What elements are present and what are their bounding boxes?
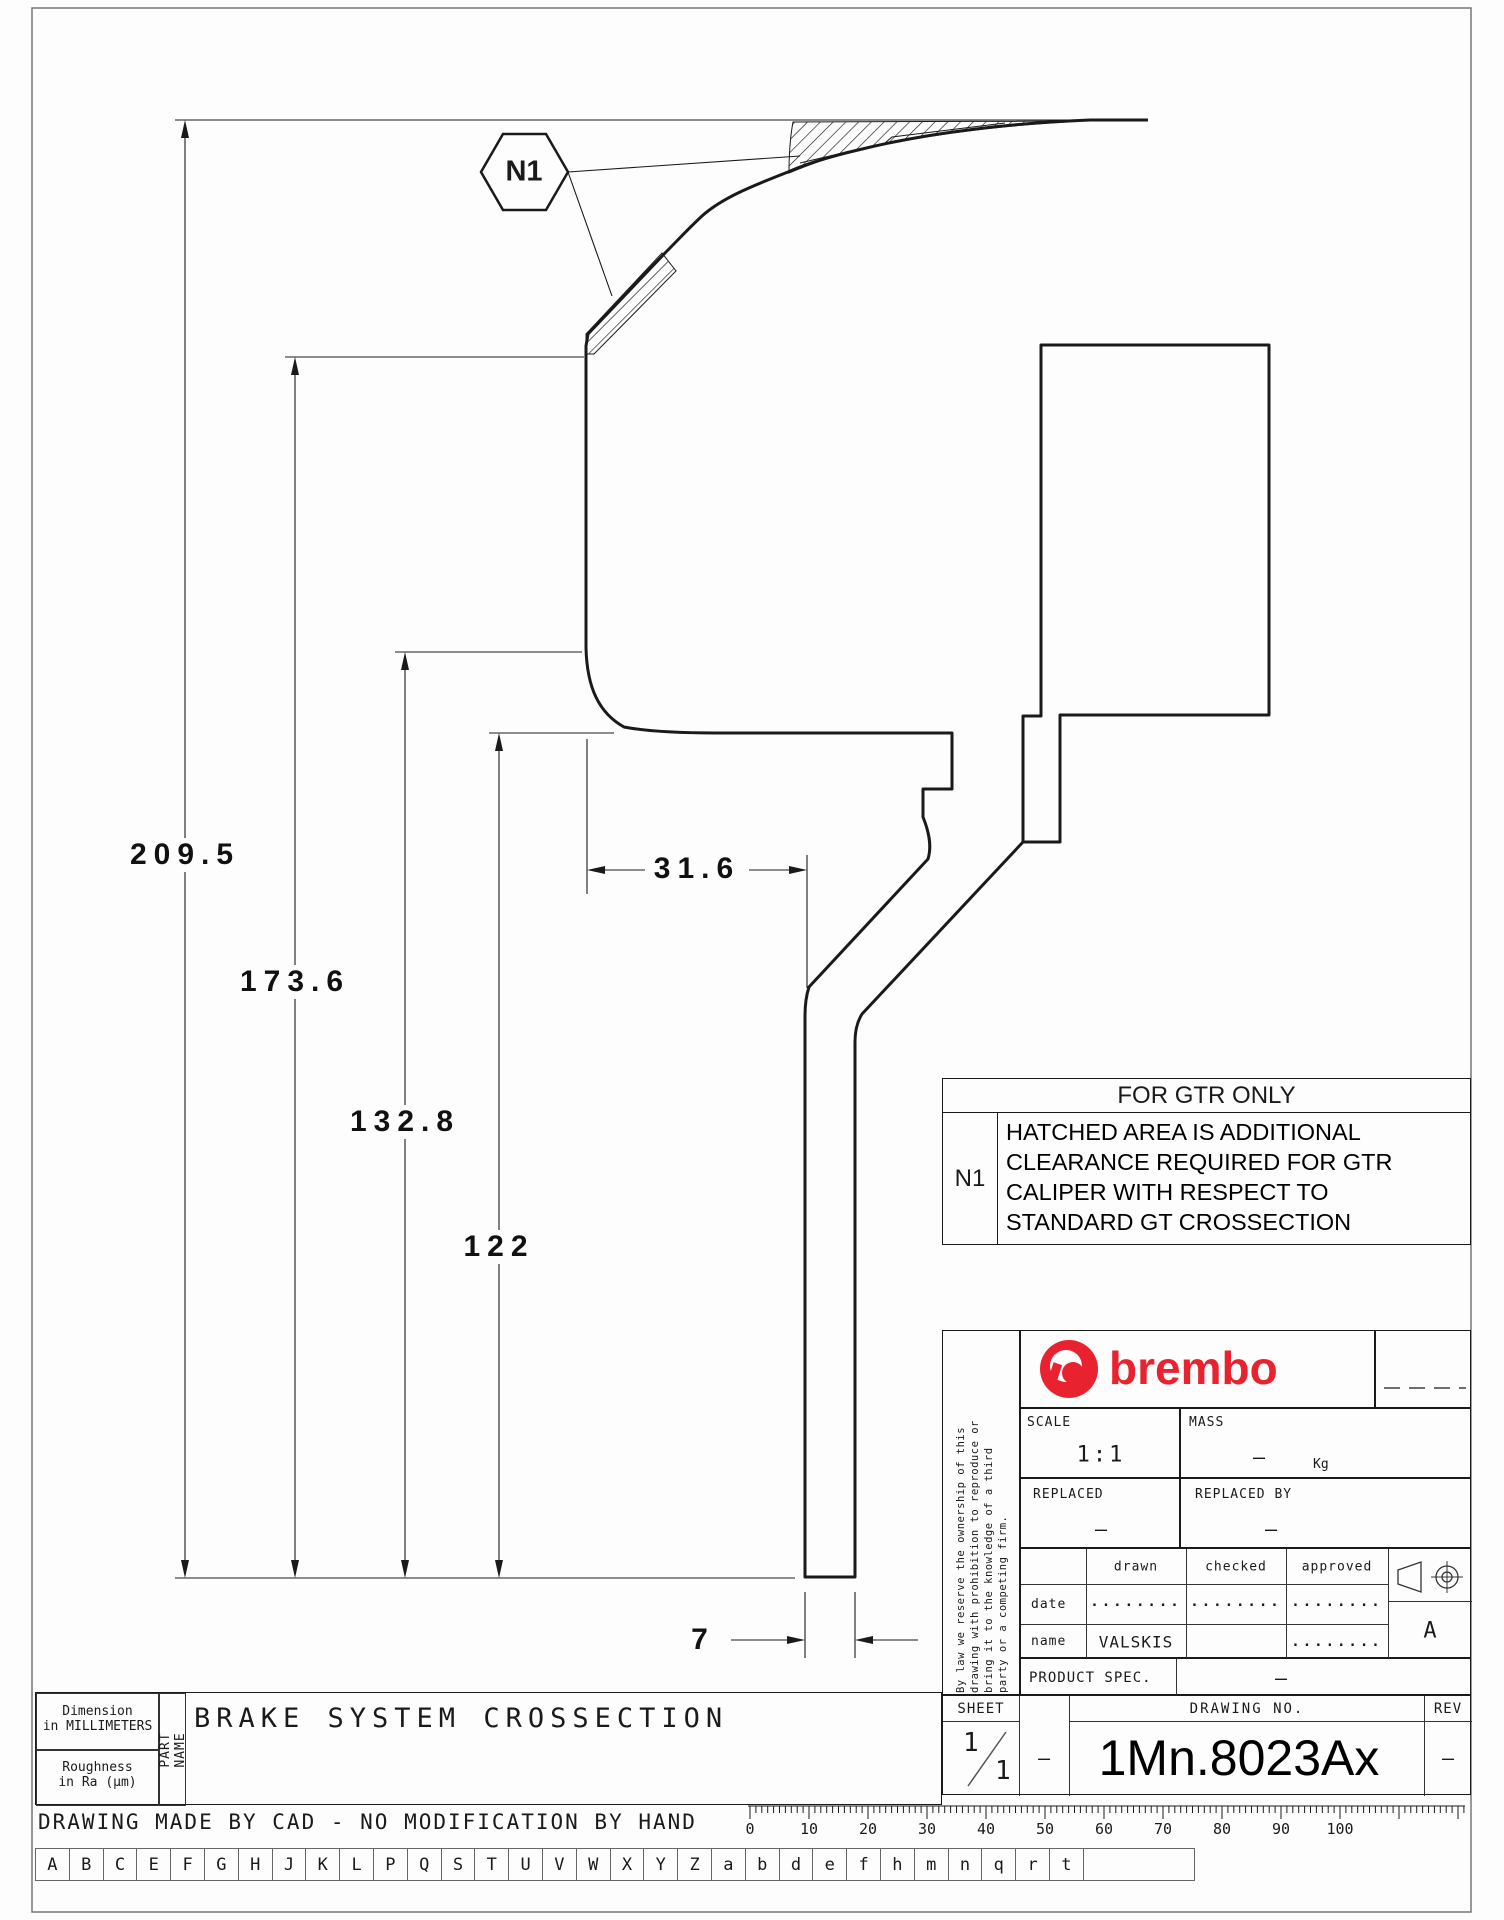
letter-cell-b: b bbox=[745, 1848, 780, 1881]
letter-cell-Z: Z bbox=[677, 1848, 712, 1881]
note-table: FOR GTR ONLY N1 HATCHED AREA IS ADDITION… bbox=[942, 1078, 1471, 1245]
signature-grid: drawn checked approved date ........ ...… bbox=[1020, 1548, 1471, 1658]
letter-cell-e: e bbox=[812, 1848, 847, 1881]
letter-cell-U: U bbox=[508, 1848, 543, 1881]
ruler-label-50: 50 bbox=[1036, 1820, 1054, 1838]
sheet-num: 1 bbox=[963, 1728, 979, 1758]
note-table-header: FOR GTR ONLY bbox=[943, 1079, 1470, 1113]
dim-value-132-8: 132.8 bbox=[344, 1105, 466, 1139]
replaced-by-label: REPLACED BY bbox=[1195, 1487, 1292, 1502]
replaced-value: – bbox=[1095, 1517, 1107, 1541]
brand-cell: brembo bbox=[1020, 1330, 1375, 1408]
ruler-label-100: 100 bbox=[1326, 1820, 1353, 1838]
sheet-label: SHEET bbox=[957, 1701, 1004, 1717]
ruler-labels: 0102030405060708090100 bbox=[0, 1820, 1504, 1840]
ruler-label-10: 10 bbox=[800, 1820, 818, 1838]
ruler-ticks bbox=[748, 1806, 1465, 1819]
product-spec-value: – bbox=[1275, 1666, 1287, 1690]
rev-value: – bbox=[1442, 1746, 1454, 1770]
disclaimer-line-3: party or a competing firm. bbox=[996, 1333, 1010, 1693]
ruler-label-80: 80 bbox=[1213, 1820, 1231, 1838]
roughness-note-line2: in Ra (µm) bbox=[37, 1775, 158, 1790]
ruler-label-0: 0 bbox=[745, 1820, 754, 1838]
hatched-area-top bbox=[789, 121, 1082, 173]
disclaimer-text: By law we reserve the ownership of thisd… bbox=[954, 1333, 1010, 1693]
letter-cell-d: d bbox=[779, 1848, 814, 1881]
letter-cell-h: h bbox=[880, 1848, 915, 1881]
mass-label: MASS bbox=[1189, 1415, 1224, 1430]
letter-cell-G: G bbox=[204, 1848, 239, 1881]
letter-cell-f: f bbox=[846, 1848, 881, 1881]
ruler-label-90: 90 bbox=[1272, 1820, 1290, 1838]
part-name-label: PART NAME bbox=[158, 1732, 188, 1767]
sheet-row: SHEET 1 1 – DRAWING NO. 1Mn.8023Ax REV – bbox=[942, 1695, 1471, 1795]
letter-cell-J: J bbox=[272, 1848, 307, 1881]
date-label: date bbox=[1031, 1597, 1066, 1612]
dim-value-173-6: 173.6 bbox=[234, 965, 356, 999]
letter-cell-m: m bbox=[914, 1848, 949, 1881]
date-approved-value: ........ bbox=[1291, 1594, 1382, 1610]
dimension-arrows bbox=[181, 120, 873, 1644]
brembo-logo-icon bbox=[1037, 1337, 1101, 1401]
letter-cell-F: F bbox=[170, 1848, 205, 1881]
note-line-2: CALIPER WITH RESPECT TO bbox=[1006, 1177, 1466, 1207]
letter-cell-H: H bbox=[238, 1848, 273, 1881]
name-approved-value: ........ bbox=[1291, 1634, 1382, 1650]
name-label: name bbox=[1031, 1634, 1066, 1649]
dimension-note-line1: Dimension bbox=[37, 1704, 158, 1719]
dim-value-31-6: 31.6 bbox=[648, 852, 746, 886]
note-line-0: HATCHED AREA IS ADDITIONAL bbox=[1006, 1117, 1466, 1147]
drawn-header: drawn bbox=[1114, 1560, 1158, 1575]
letter-cell-S: S bbox=[441, 1848, 476, 1881]
ruler-label-20: 20 bbox=[859, 1820, 877, 1838]
projection-symbol-icon bbox=[1393, 1557, 1469, 1597]
letter-cell-A: A bbox=[35, 1848, 70, 1881]
replaced-by-value: – bbox=[1265, 1517, 1277, 1541]
product-spec-label: PRODUCT SPEC. bbox=[1029, 1670, 1152, 1686]
callout-leader-lines bbox=[568, 156, 800, 296]
letters-row: ABCEFGHJKLPQSTUVWXYZabdefhmnqrt bbox=[35, 1848, 1335, 1881]
letter-cell-Y: Y bbox=[643, 1848, 678, 1881]
letter-cell-B: B bbox=[69, 1848, 104, 1881]
sheet-dash-value: – bbox=[1038, 1746, 1050, 1770]
letter-cell-empty bbox=[1083, 1848, 1195, 1881]
drawing-no-label: DRAWING NO. bbox=[1190, 1701, 1305, 1717]
roughness-note-box: Roughness in Ra (µm) bbox=[36, 1750, 159, 1806]
date-drawn-value: ........ bbox=[1090, 1594, 1181, 1610]
note-line-3: STANDARD GT CROSSECTION bbox=[1006, 1207, 1466, 1237]
mass-unit: Kg bbox=[1313, 1457, 1329, 1472]
letter-cell-r: r bbox=[1015, 1848, 1050, 1881]
dimension-note-box: Dimension in MILLIMETERS bbox=[36, 1693, 159, 1750]
letter-cell-Q: Q bbox=[407, 1848, 442, 1881]
titleblock-top-right-cell bbox=[1375, 1330, 1471, 1408]
roughness-note-line1: Roughness bbox=[37, 1760, 158, 1775]
letter-cell-a: a bbox=[711, 1848, 746, 1881]
dim-value-7: 7 bbox=[685, 1623, 721, 1657]
letter-cell-T: T bbox=[474, 1848, 509, 1881]
scale-label: SCALE bbox=[1027, 1415, 1071, 1430]
letter-cell-L: L bbox=[339, 1848, 374, 1881]
letter-cell-n: n bbox=[948, 1848, 983, 1881]
approved-header: approved bbox=[1302, 1560, 1373, 1575]
drawing-sheet: 209.5 173.6 132.8 122 31.6 7 N1 FOR GTR … bbox=[0, 0, 1504, 1920]
replaced-label: REPLACED bbox=[1033, 1487, 1104, 1502]
mass-cell: MASS – Kg bbox=[1180, 1408, 1471, 1478]
mass-value: – bbox=[1253, 1445, 1265, 1469]
callout-label: N1 bbox=[505, 156, 542, 189]
scale-cell: SCALE 1:1 bbox=[1020, 1408, 1180, 1478]
rev-label: REV bbox=[1434, 1701, 1462, 1717]
letter-cell-C: C bbox=[103, 1848, 138, 1881]
letter-cell-K: K bbox=[305, 1848, 340, 1881]
disclaimer-strip: By law we reserve the ownership of thisd… bbox=[942, 1330, 1020, 1695]
dim-value-122: 122 bbox=[457, 1230, 540, 1264]
scale-value: 1:1 bbox=[1077, 1443, 1126, 1468]
dimension-note-line2: in MILLIMETERS bbox=[37, 1719, 158, 1734]
replaced-by-cell: REPLACED BY – bbox=[1180, 1478, 1471, 1548]
note-line-1: CLEARANCE REQUIRED FOR GTR bbox=[1006, 1147, 1466, 1177]
letter-cell-t: t bbox=[1049, 1848, 1084, 1881]
ruler-label-60: 60 bbox=[1095, 1820, 1113, 1838]
ruler-label-30: 30 bbox=[918, 1820, 936, 1838]
note-table-text: HATCHED AREA IS ADDITIONALCLEARANCE REQU… bbox=[1006, 1117, 1466, 1237]
footer-strip: Dimension in MILLIMETERS Roughness in Ra… bbox=[35, 1692, 942, 1805]
name-drawn-value: VALSKIS bbox=[1099, 1633, 1173, 1652]
caliper-block-outline bbox=[1023, 345, 1269, 842]
hatched-area-band bbox=[586, 253, 676, 354]
letter-cell-q: q bbox=[981, 1848, 1016, 1881]
product-spec-cell: PRODUCT SPEC. – bbox=[1020, 1658, 1471, 1695]
format-letter: A bbox=[1423, 1619, 1436, 1644]
drawing-no-value: 1Mn.8023Ax bbox=[1099, 1729, 1380, 1787]
part-name-label-box: PART NAME bbox=[159, 1693, 186, 1806]
date-checked-value: ........ bbox=[1190, 1594, 1281, 1610]
disclaimer-line-2: bring it to the knowledge of a third bbox=[982, 1333, 996, 1693]
disclaimer-line-1: drawing with prohibition to reproduce or bbox=[968, 1333, 982, 1693]
letter-cell-X: X bbox=[610, 1848, 645, 1881]
part-name-value: BRAKE SYSTEM CROSSECTION bbox=[194, 1703, 728, 1734]
letter-cell-V: V bbox=[542, 1848, 577, 1881]
letter-cell-E: E bbox=[136, 1848, 171, 1881]
letter-cell-P: P bbox=[373, 1848, 408, 1881]
ruler-label-40: 40 bbox=[977, 1820, 995, 1838]
brand-wordmark: brembo bbox=[1109, 1341, 1278, 1395]
letter-cell-W: W bbox=[576, 1848, 611, 1881]
note-table-ref: N1 bbox=[943, 1113, 998, 1244]
replaced-cell: REPLACED – bbox=[1020, 1478, 1180, 1548]
ruler-label-70: 70 bbox=[1154, 1820, 1172, 1838]
disclaimer-line-0: By law we reserve the ownership of this bbox=[954, 1333, 968, 1693]
dim-value-209-5: 209.5 bbox=[124, 838, 246, 872]
checked-header: checked bbox=[1205, 1560, 1267, 1575]
sheet-total: 1 bbox=[995, 1756, 1011, 1786]
